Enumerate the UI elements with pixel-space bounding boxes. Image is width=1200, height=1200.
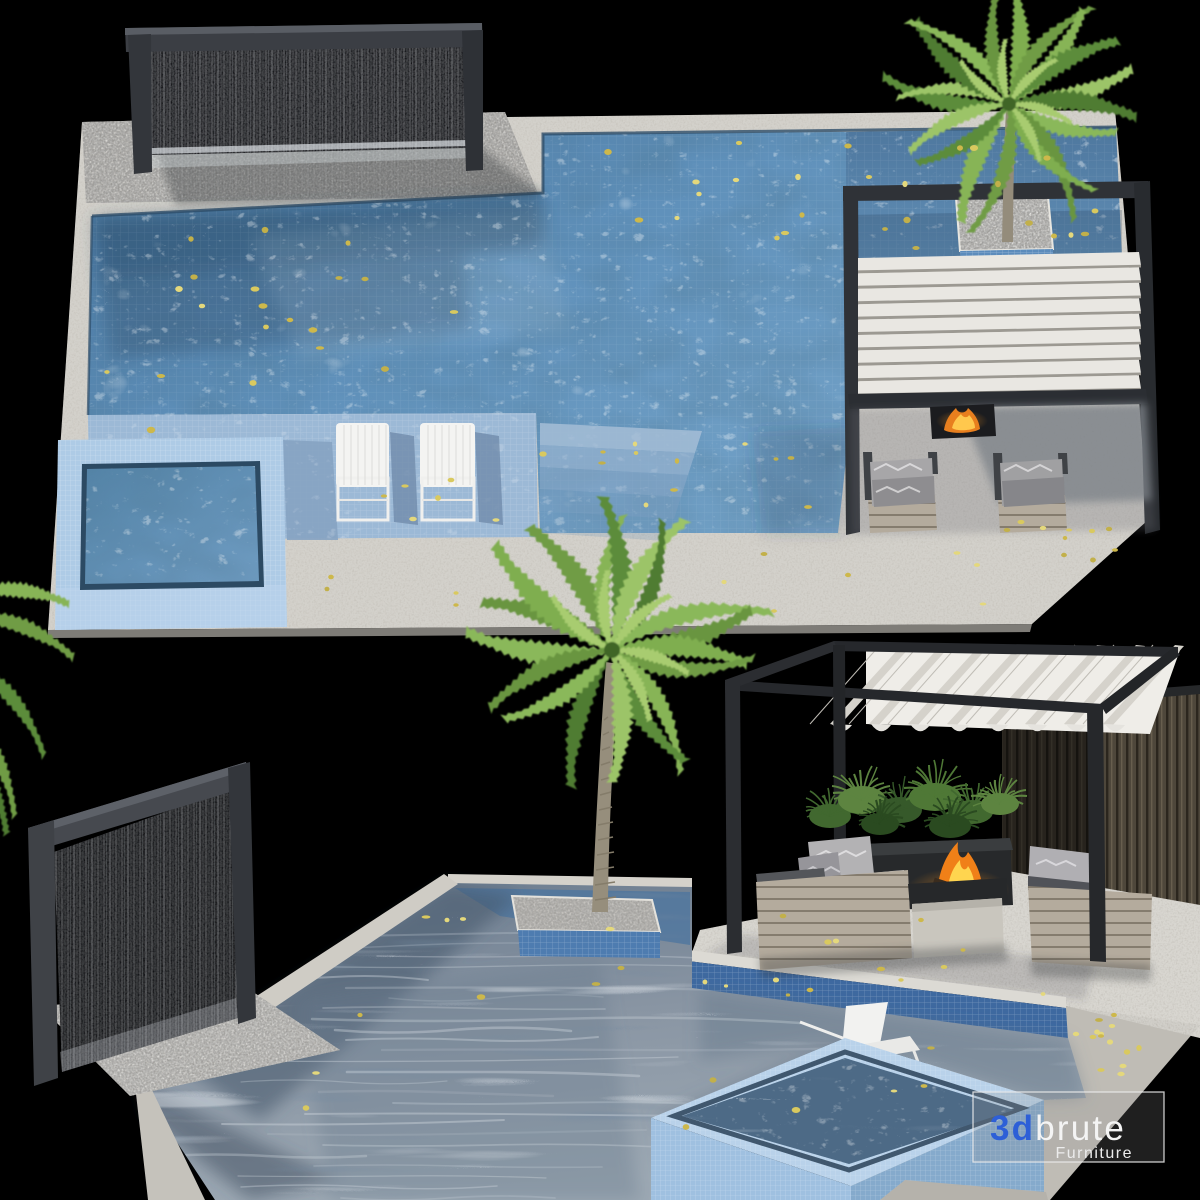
svg-text:Furniture: Furniture (1055, 1145, 1133, 1162)
svg-text:3dbrute: 3dbrute (990, 1109, 1126, 1148)
